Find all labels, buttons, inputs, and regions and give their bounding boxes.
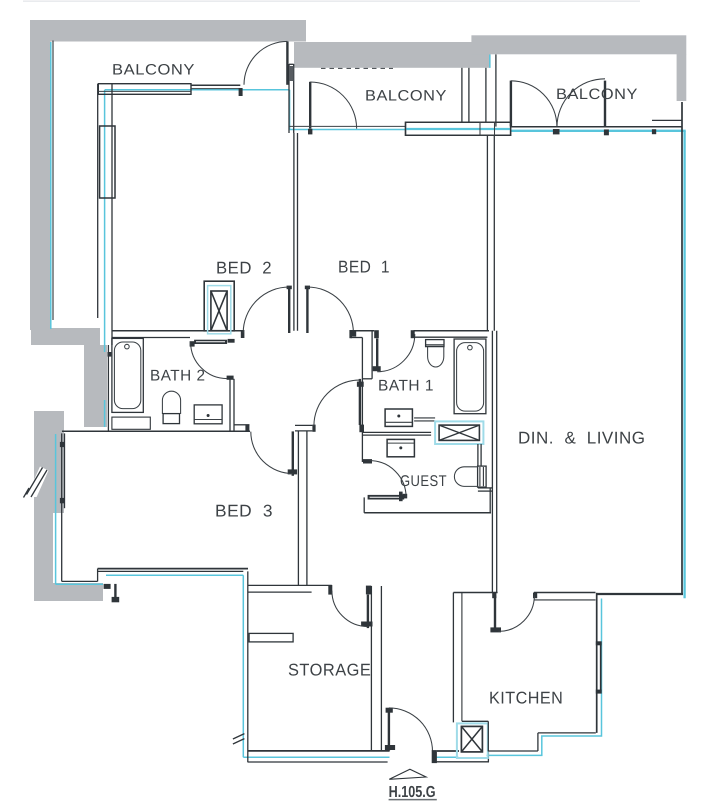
- svg-text:GUEST: GUEST: [400, 473, 447, 490]
- svg-text:KITCHEN: KITCHEN: [489, 689, 563, 708]
- svg-text:DIN. & LIVING: DIN. & LIVING: [518, 428, 646, 447]
- svg-text:BED 2: BED 2: [216, 258, 272, 277]
- svg-text:BALCONY: BALCONY: [556, 86, 638, 103]
- svg-text:H.105.G: H.105.G: [389, 784, 436, 801]
- svg-text:BATH 2: BATH 2: [150, 368, 206, 385]
- svg-text:BALCONY: BALCONY: [112, 62, 195, 79]
- svg-text:BALCONY: BALCONY: [365, 88, 447, 105]
- svg-text:BED 3: BED 3: [215, 501, 273, 520]
- svg-text:BATH 1: BATH 1: [378, 377, 434, 394]
- svg-text:BED 1: BED 1: [338, 258, 390, 277]
- svg-text:STORAGE: STORAGE: [288, 661, 371, 680]
